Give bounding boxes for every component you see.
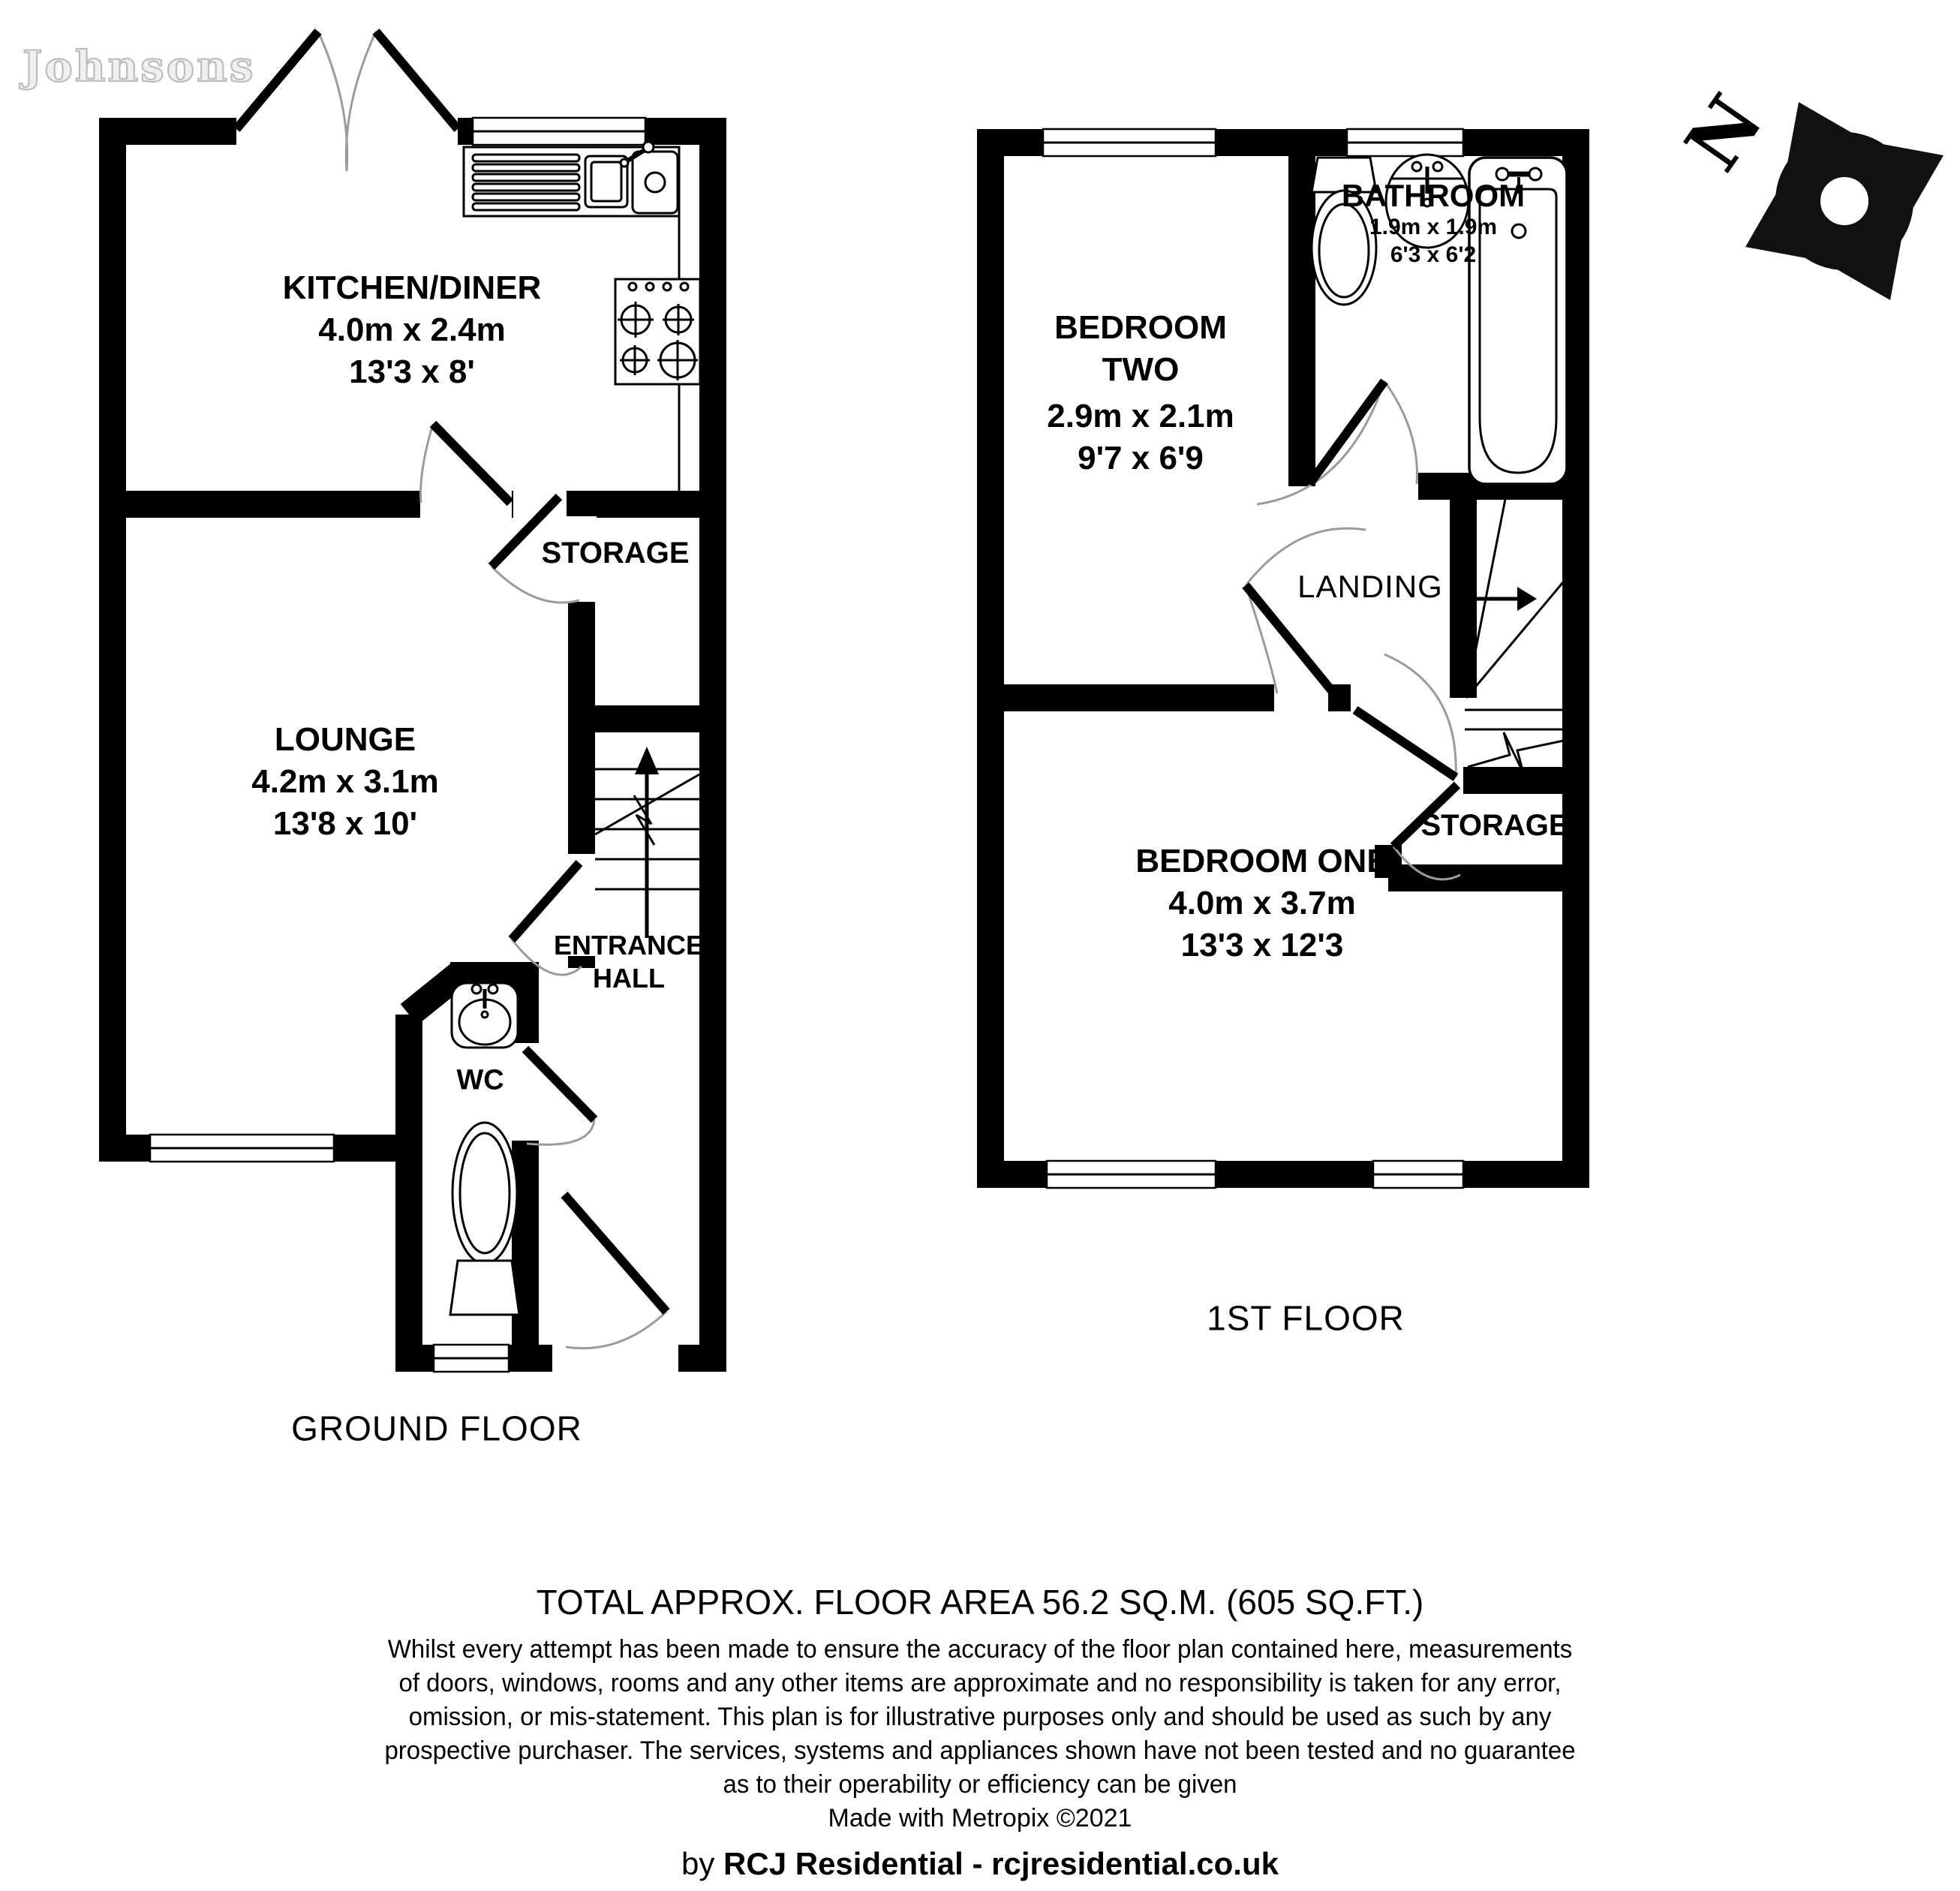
johnsons-watermark: Johnsons [23,42,255,92]
bedroom-two-name2: TWO [1047,349,1234,391]
bathroom-label: BATHROOM 1.9m x 1.9m 6'3 x 6'2 [1342,179,1525,269]
disclaimer-line: of doors, windows, rooms and any other i… [29,1667,1931,1700]
bedroom-two-label: BEDROOM TWO 2.9m x 2.1m 9'7 x 6'9 [1047,307,1234,480]
bathroom-metric: 1.9m x 1.9m [1342,213,1525,241]
first-storage-label: STORAGE [1420,807,1568,844]
first-floor-title: 1ST FLOOR [1207,1297,1405,1340]
bedroom-one-label: BEDROOM ONE 4.0m x 3.7m 13'3 x 12'3 [1135,840,1388,967]
bedroom-two-door-icon [1246,528,1366,693]
kitchen-sink-icon [464,142,679,216]
bedroom-two-metric: 2.9m x 2.1m [1047,395,1234,437]
lounge-imperial: 13'8 x 10' [251,803,439,845]
ground-stairs-icon [595,747,699,938]
lounge-label: LOUNGE 4.2m x 3.1m 13'8 x 10' [251,719,439,845]
ground-floor-title: GROUND FLOOR [291,1407,582,1451]
disclaimer-line: Whilst every attempt has been made to en… [29,1633,1931,1667]
entrance-hall-line2: HALL [554,962,704,995]
bedroom-two-window-icon [1043,129,1216,156]
bedroom-one-name: BEDROOM ONE [1135,840,1388,882]
wc-label: WC [456,1063,504,1099]
made-with-text: Made with Metropix ©2021 [0,1802,1960,1835]
credit-line: by RCJ Residential - rcjresidential.co.u… [0,1846,1960,1882]
credit-company: RCJ Residential [723,1846,963,1881]
credit-website: rcjresidential.co.uk [991,1846,1279,1881]
footer: TOTAL APPROX. FLOOR AREA 56.2 SQ.M. (605… [0,1582,1960,1882]
first-windows [1043,129,1463,1188]
bedroom-one-window1-icon [1047,1161,1216,1188]
wc-toilet-icon [450,1123,519,1315]
french-doors-icon [236,32,458,171]
lounge-window-icon [150,1135,334,1162]
ground-floor-plan [113,32,713,1373]
first-doors [1246,381,1460,879]
disclaimer-line: as to their operability or efficiency ca… [29,1768,1931,1802]
bedroom-one-imperial: 13'3 x 12'3 [1135,924,1388,967]
bathroom-name: BATHROOM [1342,179,1525,213]
bedroom-one-metric: 4.0m x 3.7m [1135,882,1388,924]
wc-window-icon [434,1345,509,1372]
floorplan-canvas: Johnsons N KITCHEN/DINER 4.0m x 2.4m 13'… [0,0,1960,1891]
bedroom-one-window2-icon [1373,1161,1463,1188]
first-door-openings [1274,683,1328,713]
credit-prefix: by [681,1846,723,1881]
bedroom-two-imperial: 9'7 x 6'9 [1047,437,1234,480]
entrance-hall-label: ENTRANCE HALL [554,929,704,995]
bathroom-window-icon [1347,129,1463,156]
lounge-name: LOUNGE [251,719,439,761]
stove-icon [615,279,700,384]
first-stairs-icon [1463,492,1574,773]
first-floor-plan [991,129,1576,1188]
landing-label: LANDING [1297,567,1443,607]
wc-basin-icon [452,983,518,1048]
bedroom-two-name1: BEDROOM [1047,307,1234,349]
kitchen-imperial: 13'3 x 8' [283,351,542,393]
ground-storage-label: STORAGE [541,534,689,572]
entrance-hall-line1: ENTRANCE [554,929,704,962]
disclaimer-line: omission, or mis-statement. This plan is… [29,1700,1931,1734]
kitchen-label: KITCHEN/DINER 4.0m x 2.4m 13'3 x 8' [283,267,542,393]
bathroom-door-icon [1257,381,1417,504]
bathroom-imperial: 6'3 x 6'2 [1342,241,1525,269]
front-door-icon [564,1195,666,1348]
credit-separator: - [963,1846,991,1881]
kitchen-name: KITCHEN/DINER [283,267,542,309]
kitchen-window-icon [473,118,645,145]
bedroom-one-door-icon [1355,654,1456,777]
total-area-text: TOTAL APPROX. FLOOR AREA 56.2 SQ.M. (605… [0,1582,1960,1622]
kitchen-metric: 4.0m x 2.4m [283,309,542,351]
disclaimer-line: prospective purchaser. The services, sys… [29,1734,1931,1768]
lounge-metric: 4.2m x 3.1m [251,761,439,803]
